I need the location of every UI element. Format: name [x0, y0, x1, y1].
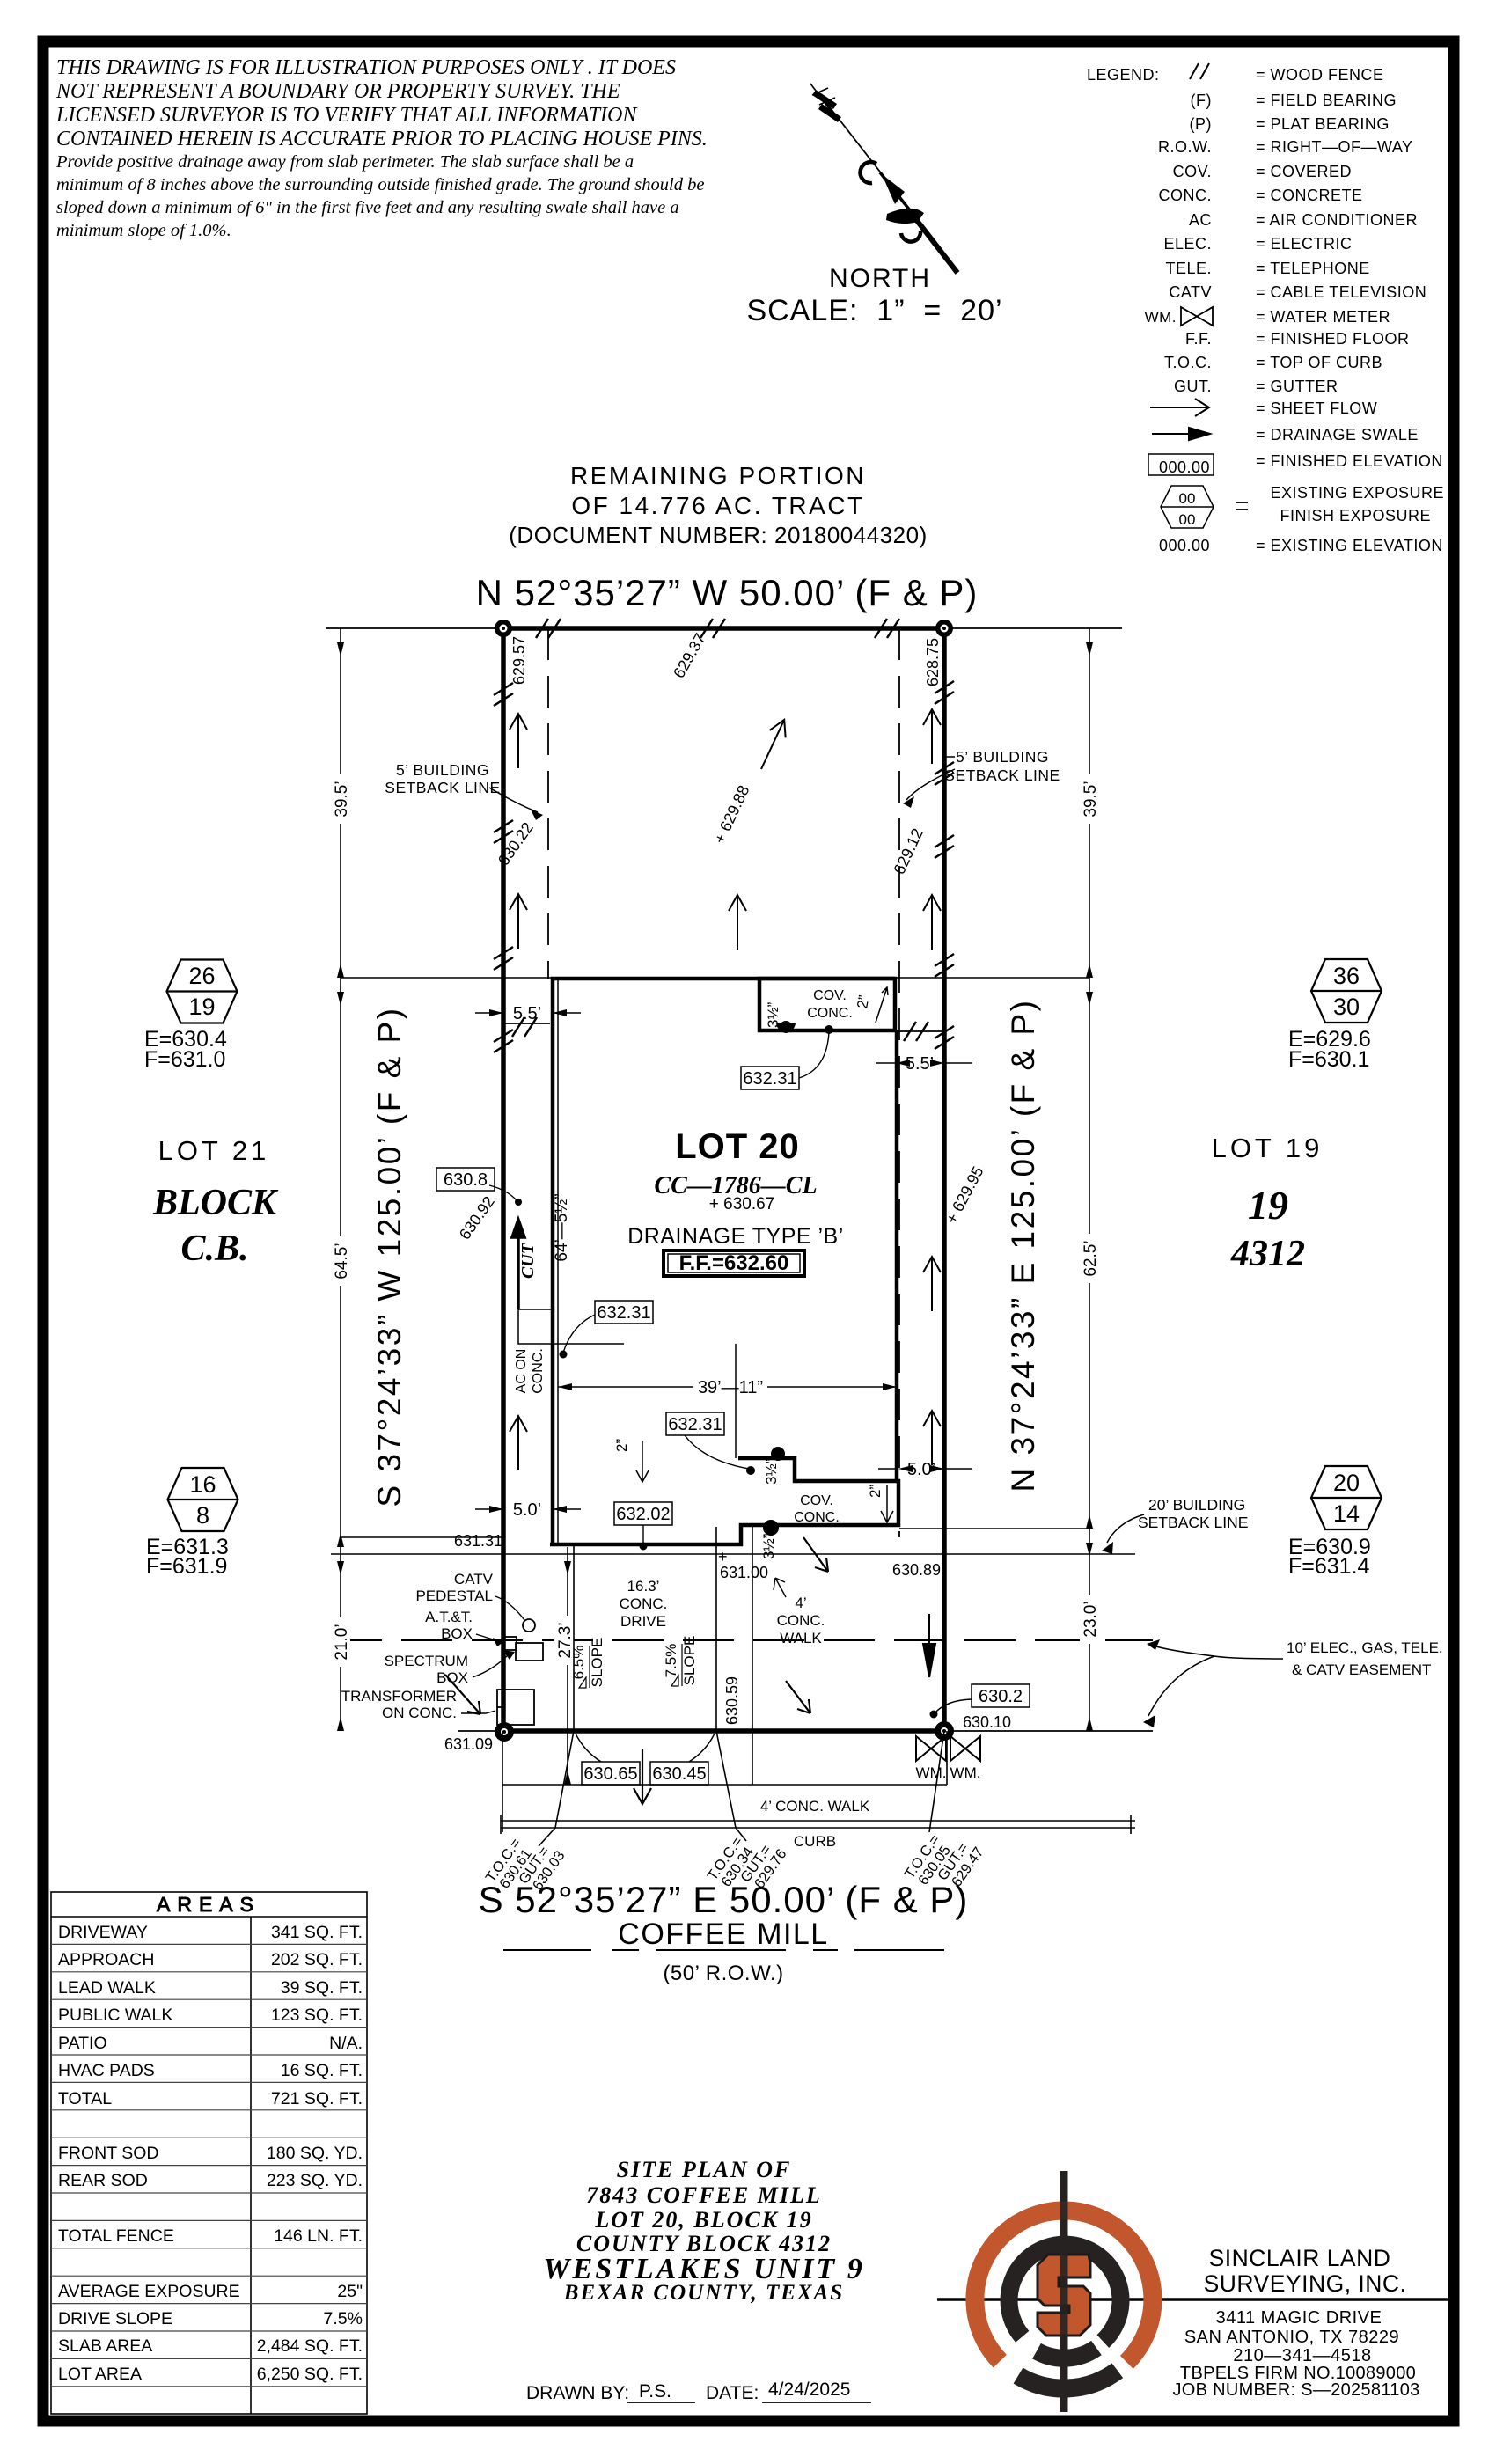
svg-text:5’ BUILDING: 5’ BUILDING	[956, 748, 1049, 766]
svg-text:LOT 21: LOT 21	[158, 1135, 270, 1166]
svg-text:CURB: CURB	[794, 1833, 836, 1850]
svg-text:= GUTTER: = GUTTER	[1256, 378, 1338, 395]
svg-text:F=631.4: F=631.4	[1288, 1554, 1370, 1579]
svg-text:146 LN. FT.: 146 LN. FT.	[274, 2226, 363, 2246]
svg-text:7.5%: 7.5%	[324, 2309, 363, 2328]
svg-text:AREAS: AREAS	[157, 1893, 260, 1916]
svg-text:LOT 20: LOT 20	[675, 1127, 800, 1166]
svg-text:2”: 2”	[867, 1485, 884, 1498]
svg-text:= WOOD FENCE: = WOOD FENCE	[1256, 66, 1384, 84]
svg-text:CUT: CUT	[518, 1243, 538, 1279]
svg-text:SURVEYING, INC.: SURVEYING, INC.	[1204, 2270, 1407, 2297]
svg-text:7.5%: 7.5%	[663, 1644, 679, 1678]
svg-text:631.00: 631.00	[720, 1564, 768, 1581]
svg-text:= FIELD BEARING: = FIELD BEARING	[1256, 92, 1397, 109]
svg-text:4312: 4312	[1230, 1234, 1305, 1274]
svg-text:= CABLE TELEVISION: = CABLE TELEVISION	[1256, 283, 1426, 301]
svg-text:COV.: COV.	[800, 1493, 833, 1508]
svg-text:TOTAL: TOTAL	[58, 2089, 112, 2108]
svg-text:632.31: 632.31	[597, 1303, 650, 1323]
svg-text:+ 629.95: + 629.95	[942, 1163, 987, 1227]
svg-text:2”: 2”	[854, 994, 872, 1010]
svg-text:62.5’: 62.5’	[1082, 1240, 1100, 1276]
svg-text:AC ON: AC ON	[514, 1349, 529, 1394]
svg-text:= RIGHT—OF—WAY: = RIGHT—OF—WAY	[1256, 138, 1413, 156]
svg-text:= TELEPHONE: = TELEPHONE	[1256, 260, 1370, 277]
svg-text:SLOPE: SLOPE	[681, 1636, 698, 1686]
svg-text:20’ BUILDING: 20’ BUILDING	[1148, 1496, 1245, 1514]
svg-text:= COVERED: = COVERED	[1256, 163, 1352, 180]
svg-text:= WATER METER: = WATER METER	[1256, 308, 1390, 326]
svg-text:39.5’: 39.5’	[1082, 781, 1100, 817]
svg-text:sloped down a minimum of 6" in: sloped down a minimum of 6" in the first…	[56, 198, 679, 217]
svg-text:631.31: 631.31	[454, 1532, 502, 1550]
svg-text:25": 25"	[337, 2282, 363, 2301]
svg-text:19: 19	[188, 994, 215, 1020]
svg-text:= PLAT BEARING: = PLAT BEARING	[1256, 115, 1390, 133]
svg-text:LEAD WALK: LEAD WALK	[58, 1978, 156, 1998]
svg-text:WALK: WALK	[780, 1630, 822, 1646]
svg-text:N/A.: N/A.	[329, 2034, 363, 2053]
svg-text:SLAB AREA: SLAB AREA	[58, 2336, 152, 2356]
svg-text:= SHEET FLOW: = SHEET FLOW	[1256, 400, 1377, 417]
svg-text:223 SQ. YD.: 223 SQ. YD.	[267, 2171, 363, 2190]
svg-text:16 SQ. FT.: 16 SQ. FT.	[281, 2061, 363, 2080]
svg-text:COFFEE MILL: COFFEE MILL	[618, 1918, 828, 1951]
svg-text:BEXAR COUNTY, TEXAS: BEXAR COUNTY, TEXAS	[563, 2281, 844, 2305]
svg-text:CONC.: CONC.	[807, 1006, 853, 1021]
svg-text:REMAINING PORTION: REMAINING PORTION	[570, 462, 866, 489]
svg-text:00: 00	[1179, 511, 1196, 528]
svg-text:LOT 19: LOT 19	[1212, 1133, 1324, 1163]
svg-text:SETBACK LINE: SETBACK LINE	[385, 779, 500, 796]
svg-text:+ 629.88: + 629.88	[710, 782, 752, 846]
svg-text:630.8: 630.8	[444, 1170, 488, 1190]
svg-text:3½”: 3½”	[765, 1001, 781, 1028]
svg-text:OF 14.776 AC. TRACT: OF 14.776 AC. TRACT	[571, 492, 864, 519]
svg-text:APPROACH: APPROACH	[58, 1950, 154, 1969]
svg-text:TRANSFORMER: TRANSFORMER	[341, 1688, 457, 1705]
svg-text:5.0’: 5.0’	[513, 1500, 541, 1520]
svg-text:S 37°24’33” W 125.00’ (F & P): S 37°24’33” W 125.00’ (F & P)	[371, 1006, 407, 1507]
svg-text:= AIR CONDITIONER: = AIR CONDITIONER	[1256, 211, 1418, 229]
svg-text:F.F.: F.F.	[1185, 330, 1212, 348]
svg-text:COV.: COV.	[813, 988, 847, 1003]
svg-text:WM.: WM.	[950, 1764, 981, 1781]
svg-text:(P): (P)	[1190, 115, 1213, 133]
svg-text:36: 36	[1333, 963, 1360, 989]
svg-text:721 SQ. FT.: 721 SQ. FT.	[271, 2089, 363, 2108]
svg-text:CONC.: CONC.	[794, 1510, 840, 1525]
svg-text:7843 COFFEE MILL: 7843 COFFEE MILL	[586, 2182, 822, 2208]
svg-text:000.00: 000.00	[1159, 537, 1210, 554]
svg-text:BOX: BOX	[436, 1669, 468, 1686]
svg-text:LOT 20, BLOCK 19: LOT 20, BLOCK 19	[594, 2207, 812, 2233]
svg-text:123 SQ. FT.: 123 SQ. FT.	[271, 2006, 363, 2025]
svg-text:(F): (F)	[1191, 92, 1212, 109]
svg-text:CONC.: CONC.	[531, 1348, 546, 1394]
svg-text:A.T.&T.: A.T.&T.	[425, 1609, 473, 1625]
svg-text:F=631.0: F=631.0	[144, 1047, 225, 1072]
svg-text:BOX: BOX	[441, 1625, 473, 1642]
svg-text:JOB NUMBER: S—202581103: JOB NUMBER: S—202581103	[1172, 2380, 1419, 2400]
svg-text:632.31: 632.31	[743, 1069, 796, 1089]
svg-text:= FINISHED FLOOR: = FINISHED FLOOR	[1256, 330, 1410, 348]
svg-text:HVAC PADS: HVAC PADS	[58, 2061, 155, 2080]
svg-text:630.89: 630.89	[892, 1561, 941, 1579]
svg-text:DATE:: DATE:	[706, 2383, 759, 2403]
svg-text:AVERAGE EXPOSURE: AVERAGE EXPOSURE	[58, 2282, 240, 2301]
svg-text:C.B.: C.B.	[180, 1228, 248, 1269]
svg-text:= EXISTING ELEVATION: = EXISTING ELEVATION	[1256, 537, 1443, 554]
svg-text:LICENSED SURVEYOR IS TO VERIFY: LICENSED SURVEYOR IS TO VERIFY THAT ALL …	[55, 104, 638, 127]
svg-text:DRIVEWAY: DRIVEWAY	[58, 1923, 148, 1942]
svg-text:F=630.1: F=630.1	[1288, 1047, 1369, 1072]
svg-text:4’ CONC. WALK: 4’ CONC. WALK	[760, 1798, 870, 1815]
svg-text:F=631.9: F=631.9	[146, 1554, 227, 1579]
svg-text:F.F.=632.60: F.F.=632.60	[679, 1251, 789, 1275]
svg-text:2”: 2”	[613, 1439, 630, 1452]
svg-text:NORTH: NORTH	[829, 264, 931, 293]
svg-text:19: 19	[1248, 1183, 1288, 1228]
svg-text:SPECTRUM: SPECTRUM	[385, 1653, 468, 1669]
svg-text:ON CONC.: ON CONC.	[382, 1705, 457, 1721]
svg-text:630.22: 630.22	[495, 819, 537, 869]
svg-text:BLOCK: BLOCK	[152, 1183, 279, 1223]
svg-text:26: 26	[188, 963, 215, 989]
svg-text:DRIVE: DRIVE	[620, 1613, 666, 1630]
svg-text:CATV: CATV	[1169, 283, 1212, 301]
svg-text:minimum slope of 1.0%.: minimum slope of 1.0%.	[56, 221, 231, 240]
svg-text:30: 30	[1333, 994, 1360, 1020]
svg-text:= TOP OF CURB: = TOP OF CURB	[1256, 354, 1382, 371]
svg-text:10’ ELEC., GAS, TELE.: 10’ ELEC., GAS, TELE.	[1287, 1639, 1443, 1656]
svg-text:16.3’: 16.3’	[627, 1578, 660, 1595]
svg-text:ELEC.: ELEC.	[1163, 235, 1212, 253]
svg-text:+ 630.67: + 630.67	[709, 1195, 775, 1214]
svg-text:6.5%: 6.5%	[570, 1646, 587, 1680]
svg-text:64.5’: 64.5’	[333, 1243, 351, 1279]
svg-text:SAN ANTONIO, TX 78229: SAN ANTONIO, TX 78229	[1184, 2328, 1399, 2347]
svg-text:630.10: 630.10	[963, 1713, 1011, 1731]
svg-text:+: +	[718, 1548, 728, 1566]
svg-text:Provide positive drainage away: Provide positive drainage away from slab…	[55, 152, 634, 172]
svg-text:64’—5½”: 64’—5½”	[553, 1193, 571, 1261]
svg-text:629.57: 629.57	[510, 636, 528, 685]
svg-text:6,250 SQ. FT.: 6,250 SQ. FT.	[257, 2365, 363, 2384]
svg-text:632.02: 632.02	[616, 1505, 670, 1524]
svg-text:4/24/2025: 4/24/2025	[768, 2380, 850, 2400]
svg-text:CONC.: CONC.	[620, 1595, 668, 1612]
svg-text:3½”: 3½”	[760, 1533, 777, 1559]
svg-text:632.31: 632.31	[668, 1415, 722, 1434]
svg-text:CONTAINED HEREIN IS ACCURATE P: CONTAINED HEREIN IS ACCURATE PRIOR TO PL…	[56, 128, 708, 150]
svg-text:COV.: COV.	[1173, 163, 1212, 180]
svg-text:631.09: 631.09	[444, 1735, 493, 1753]
svg-text:5.5’: 5.5’	[513, 1004, 541, 1023]
svg-text:DRAWN BY:: DRAWN BY:	[526, 2383, 629, 2403]
svg-text:SITE PLAN OF: SITE PLAN OF	[617, 2157, 792, 2182]
svg-text:210—341—4518: 210—341—4518	[1233, 2346, 1371, 2365]
svg-text:202 SQ. FT.: 202 SQ. FT.	[271, 1950, 363, 1969]
svg-text:AC: AC	[1189, 211, 1212, 229]
svg-text:8: 8	[196, 1502, 209, 1529]
svg-text:DRIVE SLOPE: DRIVE SLOPE	[58, 2309, 172, 2328]
svg-text:= DRAINAGE SWALE: = DRAINAGE SWALE	[1256, 426, 1419, 444]
svg-text:GUT.: GUT.	[1174, 378, 1212, 395]
svg-text:39’—11”: 39’—11”	[698, 1378, 763, 1397]
svg-text:5.0’: 5.0’	[907, 1460, 935, 1479]
svg-text:N 52°35’27” W 50.00’ (F & P): N 52°35’27” W 50.00’ (F & P)	[476, 572, 979, 613]
svg-text:(DOCUMENT NUMBER: 20180044320: (DOCUMENT NUMBER: 20180044320)	[509, 522, 927, 548]
svg-text:SINCLAIR LAND: SINCLAIR LAND	[1209, 2245, 1391, 2271]
svg-text:PUBLIC WALK: PUBLIC WALK	[58, 2006, 172, 2025]
svg-text:629.37: 629.37	[670, 630, 709, 681]
svg-text:3411 MAGIC DRIVE: 3411 MAGIC DRIVE	[1216, 2308, 1382, 2328]
svg-text:LEGEND:: LEGEND:	[1087, 66, 1160, 84]
svg-text:T.O.C.: T.O.C.	[1164, 354, 1212, 371]
svg-text:CATV: CATV	[454, 1571, 494, 1588]
svg-text:= FINISHED ELEVATION: = FINISHED ELEVATION	[1256, 452, 1443, 470]
svg-text:630.2: 630.2	[979, 1687, 1023, 1706]
svg-text:00: 00	[1179, 490, 1196, 507]
svg-text:4’: 4’	[795, 1595, 806, 1611]
svg-text:= ELECTRIC: = ELECTRIC	[1256, 235, 1353, 253]
svg-text:180 SQ. YD.: 180 SQ. YD.	[267, 2144, 363, 2163]
svg-text:630.59: 630.59	[723, 1676, 741, 1725]
svg-text:(50’ R.O.W.): (50’ R.O.W.)	[663, 1962, 783, 1985]
svg-text:000.00: 000.00	[1159, 458, 1210, 476]
svg-text:FRONT SOD: FRONT SOD	[58, 2144, 158, 2163]
svg-text:630.92: 630.92	[456, 1193, 498, 1243]
svg-text:R.O.W.: R.O.W.	[1158, 138, 1212, 156]
svg-text:SLOPE: SLOPE	[589, 1638, 605, 1688]
svg-text:SETBACK LINE: SETBACK LINE	[944, 766, 1060, 784]
svg-text:FINISH EXPOSURE: FINISH EXPOSURE	[1256, 507, 1431, 524]
svg-text:EXISTING EXPOSURE: EXISTING EXPOSURE	[1256, 484, 1444, 502]
svg-text:341 SQ. FT.: 341 SQ. FT.	[271, 1923, 363, 1942]
svg-text:& CATV EASEMENT: & CATV EASEMENT	[1292, 1661, 1431, 1678]
svg-text:629.12: 629.12	[890, 825, 926, 876]
svg-text:39 SQ. FT.: 39 SQ. FT.	[281, 1978, 363, 1998]
svg-text:PATIO: PATIO	[58, 2034, 107, 2053]
svg-text:2,484 SQ. FT.: 2,484 SQ. FT.	[257, 2336, 363, 2356]
svg-text:5.5’: 5.5’	[906, 1054, 934, 1074]
svg-text:16: 16	[189, 1471, 216, 1498]
svg-text:630.45: 630.45	[652, 1764, 706, 1784]
svg-text:21.0’: 21.0’	[333, 1624, 351, 1660]
svg-text:630.65: 630.65	[583, 1764, 637, 1784]
svg-text:minimum of 8 inches above the: minimum of 8 inches above the surroundin…	[56, 175, 704, 194]
svg-text:P.S.: P.S.	[639, 2381, 671, 2402]
svg-text:14: 14	[1333, 1500, 1360, 1527]
svg-text:S 52°35’27” E 50.00’ (F & P): S 52°35’27” E 50.00’ (F & P)	[479, 1879, 969, 1920]
svg-text:N 37°24’33” E 125.00’ (F & P): N 37°24’33” E 125.00’ (F & P)	[1005, 999, 1041, 1492]
svg-text:TOTAL FENCE: TOTAL FENCE	[58, 2226, 174, 2246]
svg-text:NOT REPRESENT A BOUNDARY OR PR: NOT REPRESENT A BOUNDARY OR PROPERTY SUR…	[55, 80, 620, 103]
svg-text:23.0’: 23.0’	[1082, 1601, 1100, 1637]
svg-text:TELE.: TELE.	[1165, 260, 1212, 277]
svg-text:REAR SOD: REAR SOD	[58, 2171, 148, 2190]
svg-text:LOT AREA: LOT AREA	[58, 2365, 142, 2384]
svg-text:WM.: WM.	[916, 1764, 947, 1781]
svg-text:SCALE: 1” = 20’: SCALE: 1” = 20’	[746, 294, 1002, 327]
svg-text:= CONCRETE: = CONCRETE	[1256, 187, 1363, 204]
svg-text:DRAINAGE TYPE ’B’: DRAINAGE TYPE ’B’	[627, 1224, 844, 1249]
svg-text:PEDESTAL: PEDESTAL	[415, 1588, 493, 1604]
svg-text:39.5’: 39.5’	[333, 781, 351, 817]
svg-text:THIS DRAWING IS FOR ILLUSTRATI: THIS DRAWING IS FOR ILLUSTRATION PURPOSE…	[56, 56, 676, 79]
svg-text:20: 20	[1333, 1470, 1360, 1496]
svg-text:CONC.: CONC.	[1159, 187, 1213, 204]
svg-text:CONC.: CONC.	[777, 1612, 825, 1629]
svg-text:628.75: 628.75	[924, 638, 942, 686]
svg-text:5’ BUILDING: 5’ BUILDING	[396, 761, 489, 779]
svg-text:3½”: 3½”	[763, 1458, 780, 1485]
svg-text:WM.: WM.	[1145, 309, 1177, 326]
svg-text:SETBACK LINE: SETBACK LINE	[1138, 1514, 1248, 1531]
